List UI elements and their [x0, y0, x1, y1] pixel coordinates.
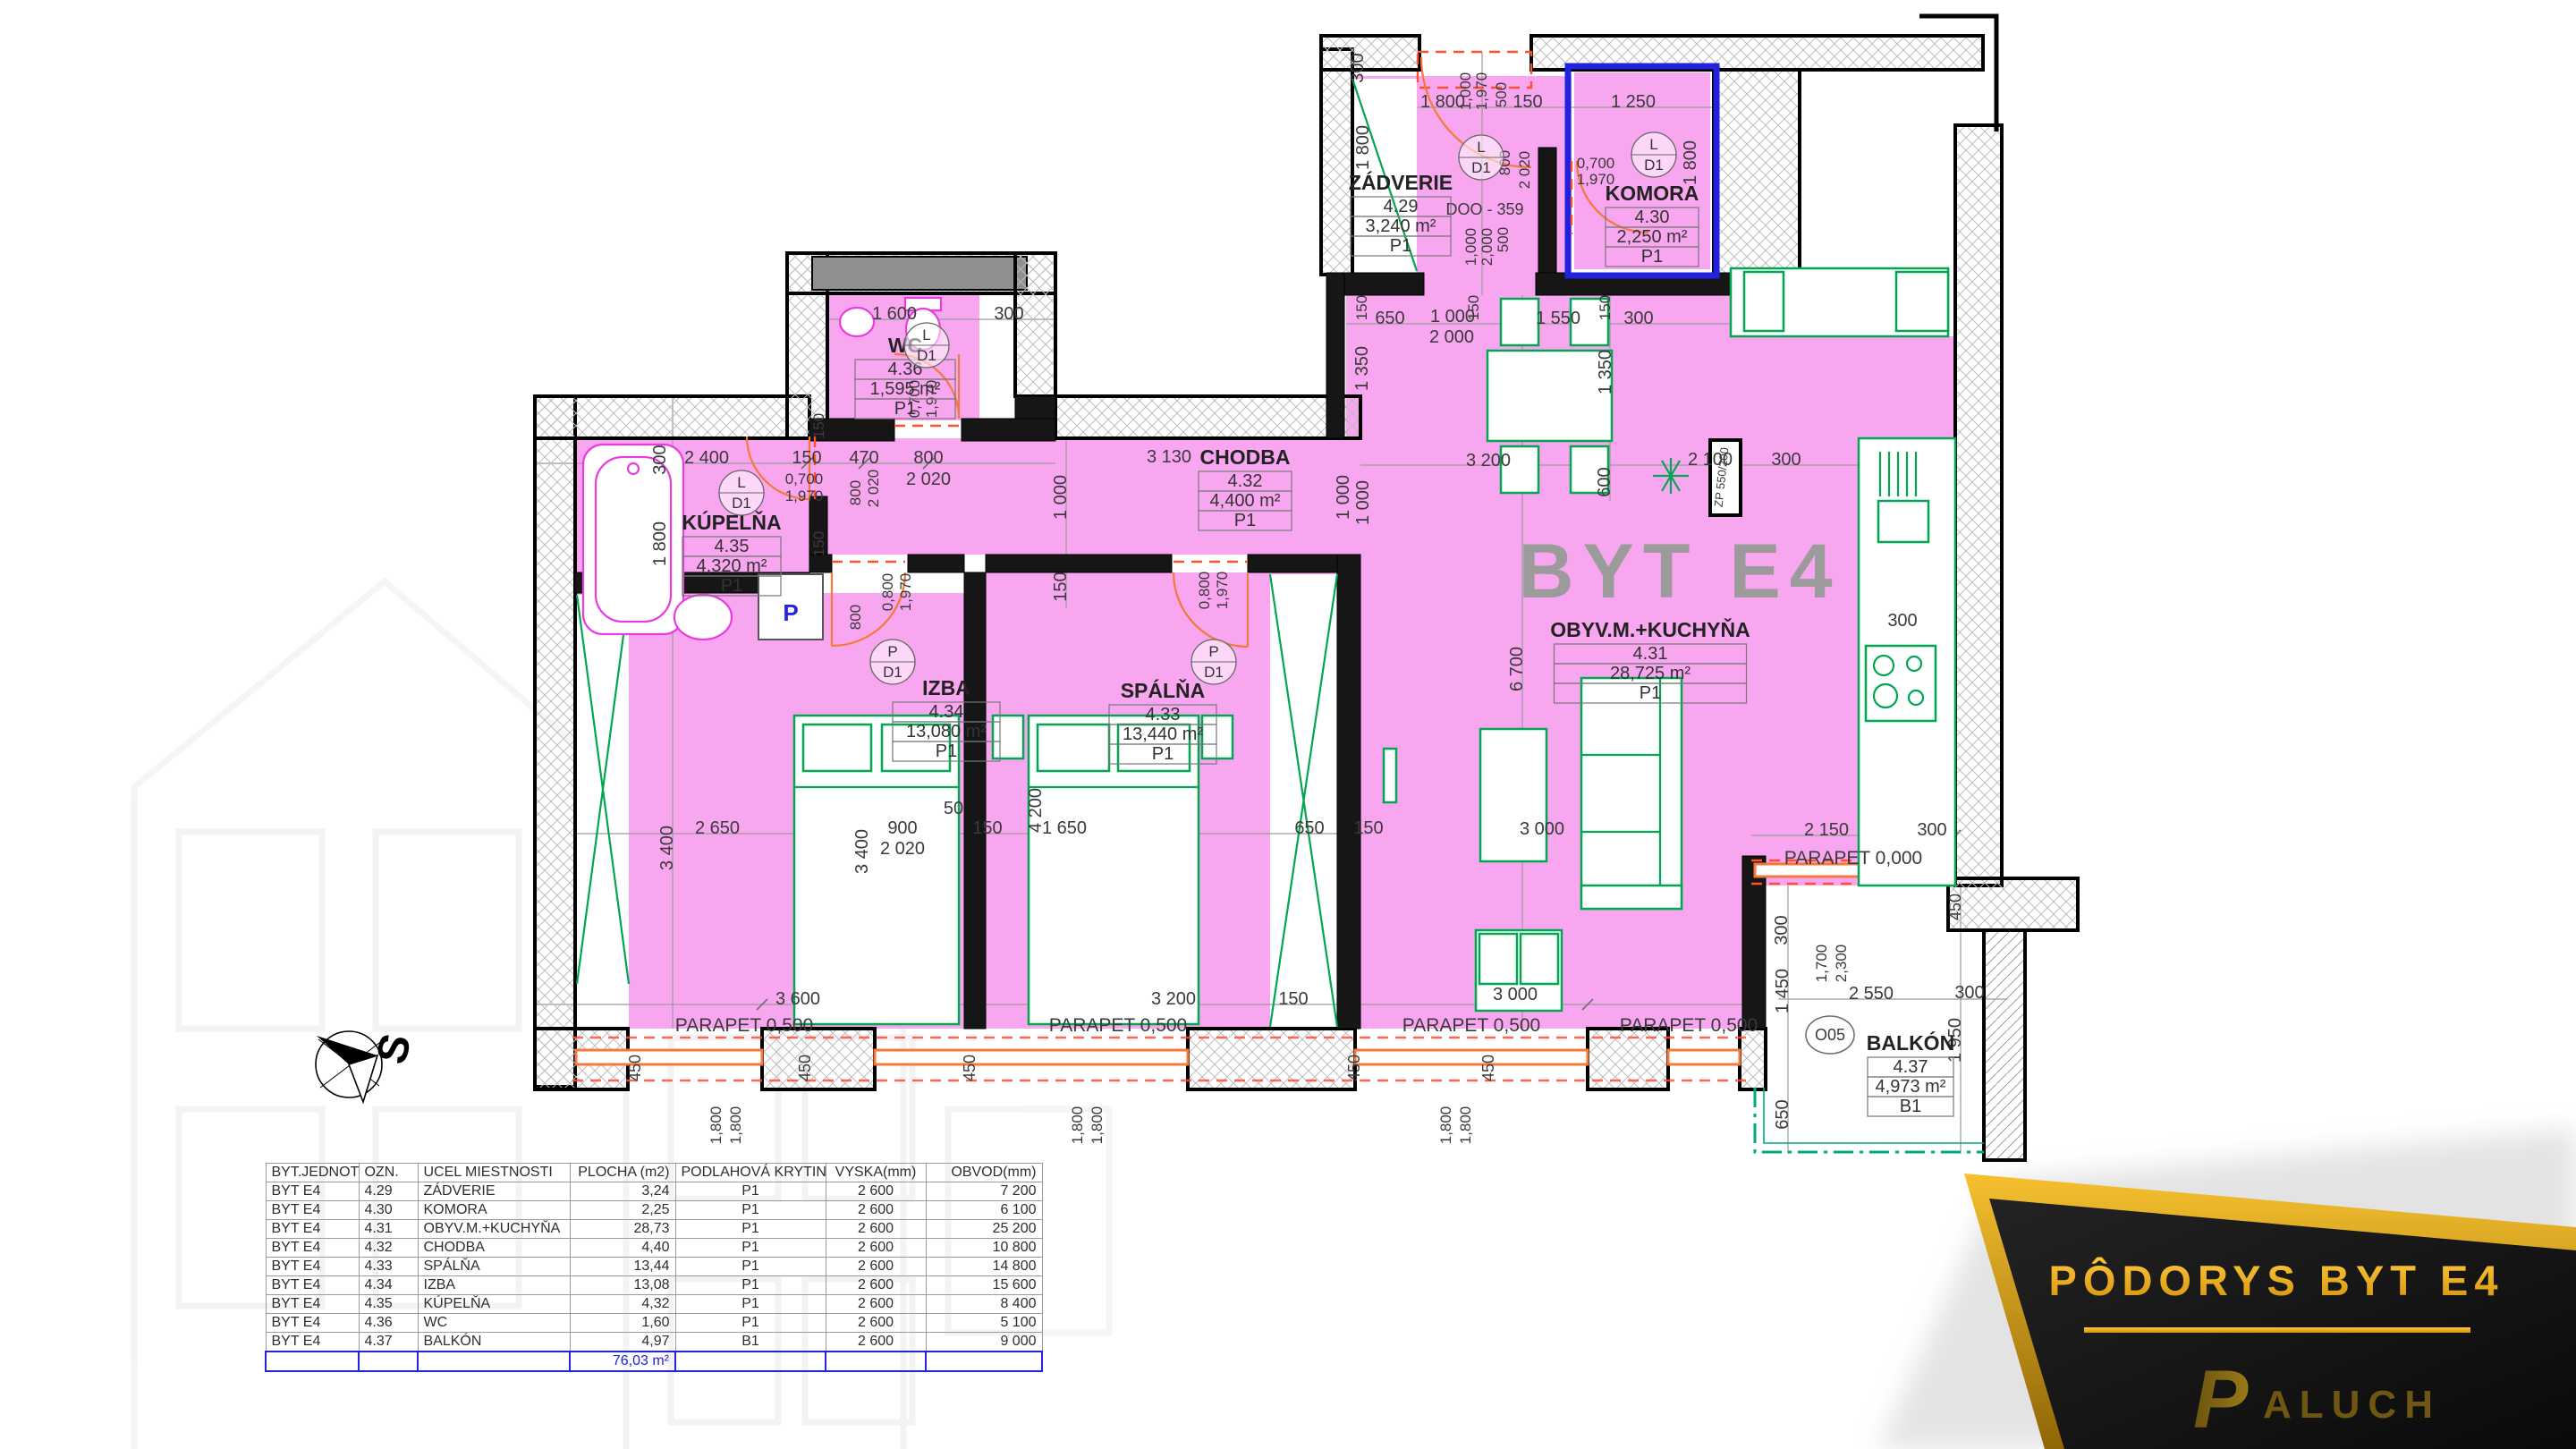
- room-name: ZÁDVERIE: [1349, 170, 1453, 194]
- dimension-label: 1 350: [1596, 350, 1615, 394]
- dimension-label: 1 800: [1353, 125, 1373, 170]
- floorplan-page: BYT E4 S 3001 8001,0001,9705001501 2501 …: [0, 0, 2576, 1449]
- dimension-label: 450: [1479, 1055, 1497, 1081]
- annotation-label: DOO - 359: [1445, 200, 1523, 218]
- dimension-label: 3 400: [657, 826, 677, 870]
- table-cell: 4.33: [359, 1258, 418, 1276]
- dimension-label: 150: [1513, 92, 1542, 112]
- dimension-label: 1 450: [1773, 969, 1792, 1013]
- room-name: OBYV.M.+KUCHYŇA: [1550, 617, 1750, 641]
- annotation-label: PARAPET 0,000: [1784, 848, 1922, 869]
- table-cell: 3,24: [570, 1182, 675, 1201]
- table-cell: 13,44: [570, 1258, 675, 1276]
- table-header-cell: PODLAHOVÁ KRYTINA: [675, 1164, 826, 1182]
- dimension-label: 2 020: [906, 470, 951, 489]
- table-cell: 2 600: [826, 1333, 926, 1352]
- dimension-label: 800: [847, 480, 864, 505]
- dimension-label: 450: [961, 1055, 979, 1081]
- dimension-label: 300: [1917, 820, 1946, 840]
- dimension-label: 4 200: [1026, 788, 1046, 833]
- room-label-balkon: BALKÓN4.374,973 m²B1: [1867, 1030, 1954, 1116]
- room-number: 4.30: [1635, 208, 1670, 227]
- table-cell: ZÁDVERIE: [418, 1182, 570, 1201]
- dimension-label: 500: [1495, 227, 1512, 252]
- table-header-row: BYT.JEDNOTKAOZN.UCEL MIESTNOSTIPLOCHA (m…: [266, 1164, 1042, 1182]
- room-floor: P1: [1152, 744, 1174, 764]
- dimension-label: 600: [1595, 467, 1614, 496]
- table-cell: IZBA: [418, 1276, 570, 1295]
- kitchen-counter-top: [1731, 268, 1948, 336]
- dimension-label: 300: [1887, 611, 1917, 631]
- dimension-label: 150: [1353, 295, 1370, 320]
- dimension-label: 50: [944, 799, 963, 818]
- compass: S: [316, 1030, 420, 1102]
- dimension-label: 650: [1773, 1099, 1792, 1129]
- room-area: 13,440 m²: [1123, 724, 1203, 744]
- dimension-label: 900: [887, 818, 917, 838]
- table-cell: B1: [675, 1333, 826, 1352]
- room-floor: P1: [936, 741, 957, 761]
- table-cell: 14 800: [926, 1258, 1042, 1276]
- door-tag: LD1: [719, 470, 764, 515]
- table-cell: BYT E4: [266, 1276, 359, 1295]
- table-cell: SPÁLŇA: [418, 1258, 570, 1276]
- table-cell: BYT E4: [266, 1201, 359, 1220]
- dimension-label: 300: [650, 445, 670, 474]
- dimension-label: 0,800: [1196, 572, 1213, 610]
- dimension-label: 450: [626, 1055, 644, 1081]
- dimension-label: 1 000: [1051, 475, 1071, 520]
- table-cell: 4.34: [359, 1276, 418, 1295]
- table-row: BYT E44.29ZÁDVERIE3,24P12 6007 200: [266, 1182, 1042, 1201]
- table-cell: 2 600: [826, 1295, 926, 1314]
- dimension-label: 150: [792, 448, 821, 468]
- room-name: KOMORA: [1606, 182, 1699, 205]
- window-living-2: [1668, 1050, 1740, 1064]
- dimension-label: 3 130: [1147, 447, 1191, 467]
- door-tag-type: D1: [732, 495, 751, 512]
- room-floor: P1: [1641, 247, 1663, 267]
- title-divider: [2084, 1327, 2470, 1333]
- dimension-label: 3 200: [1151, 989, 1196, 1009]
- table-cell: 2 600: [826, 1276, 926, 1295]
- door-tag-type: D1: [917, 347, 936, 364]
- room-number: 4.29: [1384, 197, 1419, 216]
- table-cell: WC: [418, 1314, 570, 1333]
- door-tag-type: D1: [1204, 664, 1224, 681]
- bed-spalna: [993, 716, 1233, 1024]
- table-cell: 7 200: [926, 1182, 1042, 1201]
- dimension-label: 1,700: [1813, 945, 1830, 983]
- table-cell: 2 600: [826, 1239, 926, 1258]
- dimension-label: 1,800: [727, 1106, 744, 1145]
- room-floor: P1: [894, 399, 916, 419]
- table-cell: P1: [675, 1201, 826, 1220]
- door-tag-letter: L: [1477, 139, 1485, 156]
- room-floor: B1: [1900, 1097, 1921, 1116]
- dimension-label: 3 400: [852, 829, 872, 874]
- dimension-label: 300: [1954, 983, 1984, 1003]
- dimension-label: 1 800: [650, 521, 670, 566]
- table-cell: KÚPELŇA: [418, 1295, 570, 1314]
- table-header-cell: OBVOD(mm): [926, 1164, 1042, 1182]
- door-tag-type: D1: [1471, 159, 1491, 176]
- annotation-label: O05: [1815, 1026, 1845, 1044]
- kitchen-counter-side: [1859, 438, 1955, 885]
- door-tag: PD1: [870, 640, 915, 684]
- dimension-label: 650: [1294, 818, 1324, 838]
- dimension-label: 2 020: [880, 839, 925, 859]
- table-row: BYT E44.36WC1,60P12 6005 100: [266, 1314, 1042, 1333]
- annotation-label: PARAPET 0,500: [1402, 1015, 1540, 1036]
- table-cell: 5 100: [926, 1314, 1042, 1333]
- table-total-row: 76,03 m²: [266, 1352, 1042, 1371]
- table-cell: 15 600: [926, 1276, 1042, 1295]
- dimension-label: 1 600: [872, 304, 917, 324]
- dimension-label: 650: [1375, 309, 1404, 328]
- table-cell: 10 800: [926, 1239, 1042, 1258]
- table-cell: 4.37: [359, 1333, 418, 1352]
- brand-logo-text: ALUCH: [2263, 1383, 2441, 1427]
- dimension-label: 450: [1345, 1055, 1363, 1081]
- table-cell: BYT E4: [266, 1220, 359, 1239]
- dimension-label: 800: [847, 605, 864, 630]
- door-tag-type: D1: [1644, 157, 1664, 174]
- door-tag-letter: P: [1208, 643, 1218, 660]
- dimension-label: 1,800: [1457, 1106, 1474, 1145]
- room-number: 4.35: [715, 537, 750, 556]
- room-floor: P1: [1640, 683, 1661, 703]
- dimension-label: 3 200: [1466, 451, 1511, 470]
- table-cell: BYT E4: [266, 1182, 359, 1201]
- room-name: IZBA: [922, 676, 970, 699]
- table-cell: 2 600: [826, 1182, 926, 1201]
- dimension-label: 150: [810, 413, 827, 438]
- dimension-label: 300: [1772, 915, 1792, 945]
- annotation-label: P: [783, 599, 798, 626]
- dimension-label: 0,800: [879, 573, 896, 612]
- table-cell: BYT E4: [266, 1295, 359, 1314]
- concrete-core: [812, 257, 1027, 290]
- table-header-cell: BYT.JEDNOTKA: [266, 1164, 359, 1182]
- table-cell: 4.36: [359, 1314, 418, 1333]
- unit-label: BYT E4: [1518, 529, 1841, 614]
- table-cell: 13,08: [570, 1276, 675, 1295]
- dimension-label: 3 600: [775, 989, 820, 1009]
- table-cell: BYT E4: [266, 1333, 359, 1352]
- table-row: BYT E44.33SPÁLŇA13,44P12 60014 800: [266, 1258, 1042, 1276]
- room-area: 2,250 m²: [1617, 227, 1688, 247]
- dimension-label: 1 650: [1042, 818, 1087, 838]
- bed-izba: [794, 716, 959, 1024]
- table-total-area: 76,03 m²: [570, 1352, 675, 1371]
- dimension-label: 3 000: [1520, 819, 1564, 839]
- dimension-label: 1,000: [1462, 228, 1479, 267]
- room-area: 13,080 m²: [906, 722, 987, 741]
- table-cell: 2 600: [826, 1314, 926, 1333]
- wc-basin: [840, 308, 874, 336]
- dimension-label: 300: [1348, 53, 1368, 82]
- dimension-label: 1,970: [1473, 72, 1490, 111]
- table-row: BYT E44.34IZBA13,08P12 60015 600: [266, 1276, 1042, 1295]
- room-floor: P1: [1234, 511, 1256, 530]
- annotation-label: PARAPET 0,500: [1049, 1015, 1187, 1036]
- room-number: 4.31: [1633, 644, 1668, 664]
- table-cell: 4,97: [570, 1333, 675, 1352]
- door-tag: LD1: [904, 323, 949, 368]
- table-cell: 9 000: [926, 1333, 1042, 1352]
- table-cell: 2 600: [826, 1220, 926, 1239]
- dimension-label: 1,970: [1214, 572, 1231, 610]
- dimension-label: 1,800: [1069, 1106, 1086, 1145]
- dimension-label: 1 000: [1334, 475, 1353, 520]
- title-block-title: PÔDORYS BYT E4: [2049, 1257, 2504, 1304]
- table-row: BYT E44.31OBYV.M.+KUCHYŇA28,73P12 60025 …: [266, 1220, 1042, 1239]
- neighbor-structure: [1919, 16, 1996, 131]
- dimension-label: 2,300: [1833, 945, 1850, 983]
- dimension-label: 3 000: [1493, 985, 1538, 1004]
- room-floor: P1: [721, 576, 742, 596]
- table-cell: BYT E4: [266, 1239, 359, 1258]
- dimension-label: 1 250: [1611, 92, 1656, 112]
- table-cell: 2 600: [826, 1258, 926, 1276]
- dimension-label: 2 550: [1849, 984, 1894, 1004]
- window-spalna: [875, 1050, 1188, 1064]
- table-cell: P1: [675, 1295, 826, 1314]
- room-area: 4,320 m²: [697, 556, 767, 576]
- dimension-label: 0,700: [785, 470, 824, 487]
- table-cell: P1: [675, 1239, 826, 1258]
- dimension-label: 1 000: [1353, 480, 1373, 525]
- table-cell: BYT E4: [266, 1314, 359, 1333]
- dimension-label: 470: [849, 448, 878, 468]
- dimension-label: 300: [1771, 450, 1801, 470]
- dimension-label: 2 020: [1516, 151, 1533, 190]
- annotation-label: PARAPET 0,500: [675, 1015, 813, 1036]
- dimension-label: 2,000: [1479, 228, 1496, 267]
- brand-logo-initial: P: [2193, 1354, 2249, 1445]
- dimension-label: 150: [1278, 989, 1308, 1009]
- dimension-label: 450: [796, 1055, 814, 1081]
- table-cell: 4.35: [359, 1295, 418, 1314]
- dimension-label: 1,970: [785, 487, 824, 504]
- room-name: CHODBA: [1200, 445, 1291, 469]
- room-area: 28,725 m²: [1610, 664, 1690, 683]
- door-tag-letter: P: [887, 643, 897, 660]
- table-row: BYT E44.32CHODBA4,40P12 60010 800: [266, 1239, 1042, 1258]
- room-number: 4.37: [1894, 1057, 1928, 1077]
- dimension-label: 150: [1597, 295, 1614, 320]
- dimension-label: 150: [1051, 572, 1071, 601]
- title-block: PÔDORYS BYT E4 P ALUCH: [1878, 1129, 2576, 1449]
- sofa: [1581, 678, 1682, 909]
- dimension-label: 150: [810, 531, 827, 556]
- dimension-label: 1,000: [1457, 72, 1474, 111]
- dimension-label: 2 020: [865, 470, 882, 508]
- door-tag-letter: L: [922, 326, 930, 343]
- table-cell: OBYV.M.+KUCHYŇA: [418, 1220, 570, 1239]
- table-row: BYT E44.37BALKÓN4,97B12 6009 000: [266, 1333, 1042, 1352]
- dimension-label: 1,800: [708, 1106, 724, 1145]
- table-row: BYT E44.30KOMORA2,25P12 6006 100: [266, 1201, 1042, 1220]
- table-cell: 4,40: [570, 1239, 675, 1258]
- dimension-label: 1,970: [897, 573, 914, 612]
- dimension-label: 1 800: [1681, 140, 1700, 185]
- dimension-label: 150: [1353, 818, 1383, 838]
- table-cell: 4.29: [359, 1182, 418, 1201]
- table-header-cell: UCEL MIESTNOSTI: [418, 1164, 570, 1182]
- dimension-label: 1 550: [1536, 309, 1580, 328]
- dimension-label: 150: [972, 818, 1002, 838]
- dimension-label: 300: [1623, 309, 1653, 328]
- table-cell: 4.32: [359, 1239, 418, 1258]
- table-cell: 8 400: [926, 1295, 1042, 1314]
- dimension-label: 6 700: [1507, 647, 1527, 691]
- table-cell: BYT E4: [266, 1258, 359, 1276]
- table-cell: 4.30: [359, 1201, 418, 1220]
- table-cell: 4,32: [570, 1295, 675, 1314]
- door-tag-letter: L: [1649, 136, 1657, 153]
- table-cell: 2,25: [570, 1201, 675, 1220]
- table-header-cell: OZN.: [359, 1164, 418, 1182]
- table-cell: 1,60: [570, 1314, 675, 1333]
- annotation-label: PARAPET 0,500: [1620, 1015, 1758, 1036]
- dimension-label: 1 350: [1352, 346, 1372, 391]
- room-number: 4.33: [1146, 705, 1181, 724]
- dimension-label: 0,700: [1577, 155, 1615, 172]
- room-area: 1,595 m²: [870, 379, 941, 399]
- room-area: 3,240 m²: [1366, 216, 1436, 236]
- table-cell: 25 200: [926, 1220, 1042, 1239]
- door-tag: LD1: [1631, 132, 1676, 177]
- dimension-label: 1,800: [1437, 1106, 1454, 1145]
- table-cell: P1: [675, 1314, 826, 1333]
- door-tag: LD1: [1459, 135, 1504, 180]
- room-area: 4,400 m²: [1210, 491, 1281, 511]
- dimension-label: 2 000: [1429, 327, 1474, 347]
- room-floor: P1: [1390, 236, 1411, 256]
- door-tag-type: D1: [883, 664, 902, 681]
- dimension-label: 150: [1465, 295, 1482, 320]
- table-cell: P1: [675, 1276, 826, 1295]
- table-cell: CHODBA: [418, 1239, 570, 1258]
- table-cell: P1: [675, 1258, 826, 1276]
- table-cell: 28,73: [570, 1220, 675, 1239]
- door-tag: PD1: [1191, 640, 1236, 684]
- table-cell: 2 600: [826, 1201, 926, 1220]
- dimension-label: 2 150: [1804, 820, 1849, 840]
- room-name: BALKÓN: [1867, 1030, 1954, 1055]
- dimension-label: 1,800: [1089, 1106, 1106, 1145]
- room-number: 4.32: [1228, 471, 1263, 491]
- door-tag-letter: L: [737, 474, 745, 491]
- table-header-cell: PLOCHA (m2): [570, 1164, 675, 1182]
- dimension-label: 2 400: [684, 448, 729, 468]
- room-area: 4,973 m²: [1876, 1077, 1946, 1097]
- table-header-cell: VYSKA(mm): [826, 1164, 926, 1182]
- tv-board: [1384, 749, 1396, 802]
- dimension-label: 450: [1946, 894, 1964, 920]
- table-cell: 4.31: [359, 1220, 418, 1239]
- table-row: BYT E44.35KÚPELŇA4,32P12 6008 400: [266, 1295, 1042, 1314]
- washbasin: [674, 595, 732, 640]
- table-cell: BALKÓN: [418, 1333, 570, 1352]
- dimension-label: 800: [913, 448, 943, 468]
- table-cell: 6 100: [926, 1201, 1042, 1220]
- dimension-label: 300: [994, 304, 1023, 324]
- window-izba: [576, 1050, 762, 1064]
- dimension-label: 500: [1493, 82, 1510, 107]
- table-cell: KOMORA: [418, 1201, 570, 1220]
- dimension-label: 2 650: [695, 818, 740, 838]
- window-living-1: [1355, 1050, 1588, 1064]
- coffee-table: [1480, 729, 1546, 861]
- room-schedule-table: BYT.JEDNOTKAOZN.UCEL MIESTNOSTIPLOCHA (m…: [265, 1163, 1045, 1372]
- room-number: 4.34: [929, 702, 964, 722]
- table-cell: P1: [675, 1220, 826, 1239]
- room-name: SPÁLŇA: [1121, 678, 1206, 702]
- table-cell: P1: [675, 1182, 826, 1201]
